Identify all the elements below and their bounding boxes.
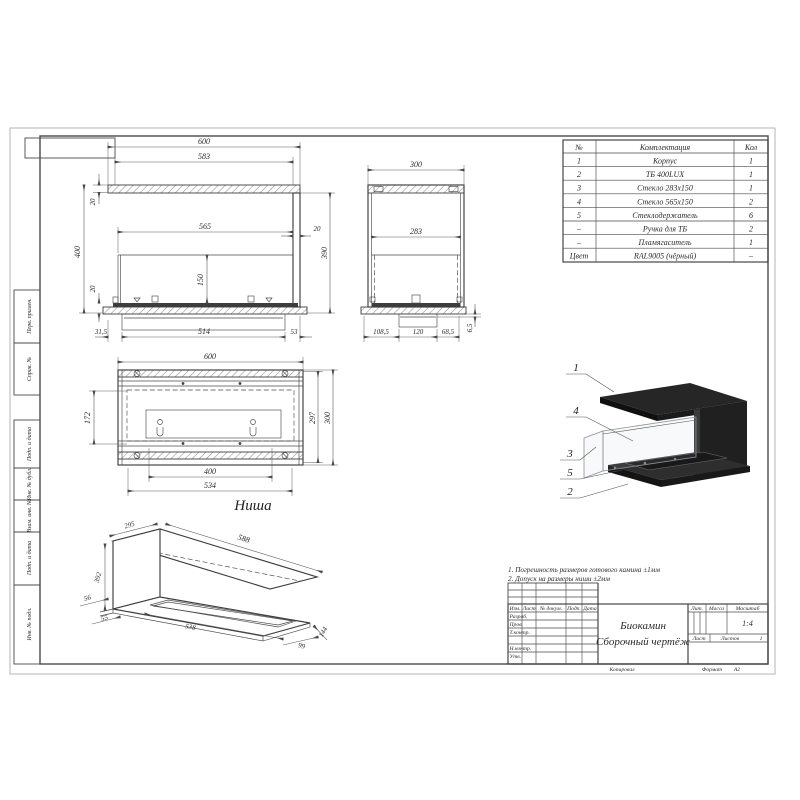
dim-390: 390 [320, 247, 329, 260]
callout-4-label: 4 [573, 405, 579, 417]
mass-label: Масса [708, 606, 724, 612]
lit-label: Лит. [690, 606, 703, 612]
margin-label-inv-dubl: Инв. № дубл. [26, 468, 33, 502]
dim-514: 514 [198, 327, 210, 336]
doc-title-line1: Биокамин [619, 620, 666, 632]
cell: Корпус [652, 157, 678, 166]
cell: 4 [577, 197, 581, 206]
dim-31-5: 31,5 [94, 328, 108, 336]
parts-header-qty: Кол [744, 143, 758, 152]
callout-3-label: 3 [566, 448, 573, 460]
cell: Ручка для ТБ [642, 225, 688, 234]
dim-120: 120 [413, 328, 424, 336]
row-tkontr: Т.контр. [510, 630, 530, 636]
drawing-canvas: Перв. примен. Справ. № Подп. и дата Инв.… [0, 0, 800, 800]
dim-172: 172 [83, 412, 92, 424]
sheet-label: Лист [691, 636, 705, 642]
dim-283: 283 [410, 227, 422, 236]
dim-297: 297 [308, 411, 317, 424]
drawing-page: Перв. примен. Справ. № Подп. и дата Инв.… [0, 0, 800, 800]
col-podp: Подп. [566, 605, 581, 612]
col-list: Лист [521, 606, 535, 612]
cell: RAL9005 (чёрный) [633, 252, 697, 261]
dim-20-top: 20 [89, 198, 97, 206]
dim-583: 583 [198, 152, 210, 161]
cell: 3 [576, 184, 581, 193]
dim-400: 400 [73, 246, 82, 258]
cell: 5 [577, 211, 581, 220]
cell: Стекло 565х150 [637, 197, 693, 206]
cell: ТБ 400LUX [646, 170, 685, 179]
row-utv: Утв. [510, 654, 522, 660]
margin-label-podp1: Подп. и дата [26, 427, 33, 462]
dim-68-5: 68,5 [442, 328, 455, 336]
parts-header-num: № [574, 143, 583, 152]
plan-view-label: Ниша [233, 498, 271, 514]
dim-53: 53 [291, 328, 299, 336]
row-nkontr: Н.контр. [509, 646, 532, 652]
parts-header-name: Комплектация [639, 143, 691, 152]
cell: 1 [577, 157, 581, 166]
col-doc: № докум. [539, 605, 562, 612]
dim-108-5: 108,5 [373, 328, 389, 336]
cell: 2 [749, 197, 753, 206]
callout-2-label: 2 [567, 486, 573, 498]
margin-label-inv-podl: Инв. № подл. [26, 607, 33, 641]
dim-150: 150 [196, 274, 205, 286]
format-value: А2 [733, 667, 740, 673]
cell: Стеклодержатель [632, 211, 698, 220]
col-data: Дата [582, 606, 596, 612]
dim-plan-400: 400 [204, 467, 216, 476]
cell: Стекло 283х150 [637, 184, 693, 193]
row-prov: Пров. [509, 622, 523, 628]
margin-label-vzam: Взам. инв. № [27, 499, 33, 532]
doc-title-line2: Сборочный чертёж [596, 636, 691, 648]
margin-label-perv: Перв. примен. [27, 298, 33, 335]
note-2: 2. Допуск на размеры ниши ±2мм [508, 575, 610, 583]
dim-600: 600 [198, 137, 210, 146]
dim-plan-600: 600 [204, 352, 216, 361]
copied-label: Копировал [608, 667, 635, 673]
dim-300: 300 [409, 160, 422, 169]
cell: 1 [749, 238, 753, 247]
dim-534: 534 [204, 481, 216, 490]
col-izm: Изм. [508, 606, 520, 612]
cell: Пламягаситель [637, 238, 691, 247]
format-label: Формат [702, 667, 722, 673]
cell: 6 [749, 211, 753, 220]
cell: 2 [749, 225, 753, 234]
margin-label-sprav: Справ. № [27, 357, 33, 382]
dim-20-bottom: 20 [89, 285, 97, 293]
cell: 1 [749, 170, 753, 179]
dim-565: 565 [199, 222, 211, 231]
cell: Цвет [569, 252, 589, 261]
scale-label: Масштаб [735, 605, 760, 612]
cell: 1 [749, 157, 753, 166]
callout-1-label: 1 [573, 362, 579, 374]
cell: 2 [577, 170, 581, 179]
dim-6-5: 6,5 [466, 323, 474, 332]
dim-plan-300: 300 [323, 412, 332, 425]
cell: 1 [749, 184, 753, 193]
row-razrab: Разраб. [509, 613, 528, 620]
dim-20-right: 20 [314, 225, 322, 233]
callout-5-label: 5 [567, 467, 573, 479]
scale-value: 1:4 [742, 619, 753, 628]
sheets-label: Листов [720, 636, 740, 642]
sheets-value: 1 [760, 636, 763, 642]
margin-label-podp2: Подп. и дата [26, 541, 33, 576]
note-1: 1. Погрешность размеров готового камина … [508, 566, 660, 574]
